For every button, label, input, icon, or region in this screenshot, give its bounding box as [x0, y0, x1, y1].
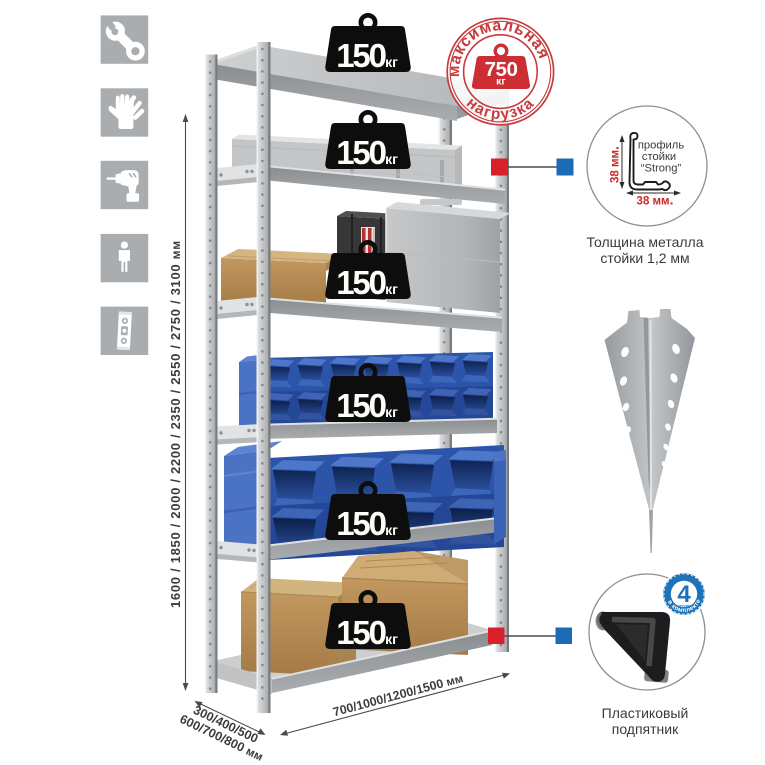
svg-text:кг: кг — [385, 281, 398, 297]
svg-text:150: 150 — [336, 505, 385, 542]
svg-text:Пластиковый: Пластиковый — [602, 705, 689, 721]
svg-text:“Strong”: “Strong” — [641, 163, 682, 175]
svg-text:профиль: профиль — [638, 140, 684, 152]
svg-text:кг: кг — [496, 76, 506, 88]
svg-text:стойки: стойки — [642, 151, 676, 163]
svg-text:кг: кг — [385, 54, 398, 70]
svg-text:кг: кг — [385, 631, 398, 647]
svg-text:150: 150 — [336, 387, 385, 424]
svg-text:подпятник: подпятник — [612, 721, 679, 737]
svg-text:Толщина металла: Толщина металла — [587, 234, 704, 250]
svg-text:кг: кг — [385, 151, 398, 167]
svg-text:150: 150 — [336, 37, 385, 74]
svg-text:кг: кг — [385, 522, 398, 538]
svg-text:150: 150 — [336, 134, 385, 171]
svg-text:кг: кг — [385, 404, 398, 420]
svg-text:150: 150 — [336, 264, 385, 301]
svg-text:1600 / 1850 / 2000 / 2200 / 23: 1600 / 1850 / 2000 / 2200 / 2350 / 2550 … — [168, 240, 183, 608]
svg-text:150: 150 — [336, 614, 385, 651]
svg-text:стойки 1,2 мм: стойки 1,2 мм — [600, 250, 689, 266]
